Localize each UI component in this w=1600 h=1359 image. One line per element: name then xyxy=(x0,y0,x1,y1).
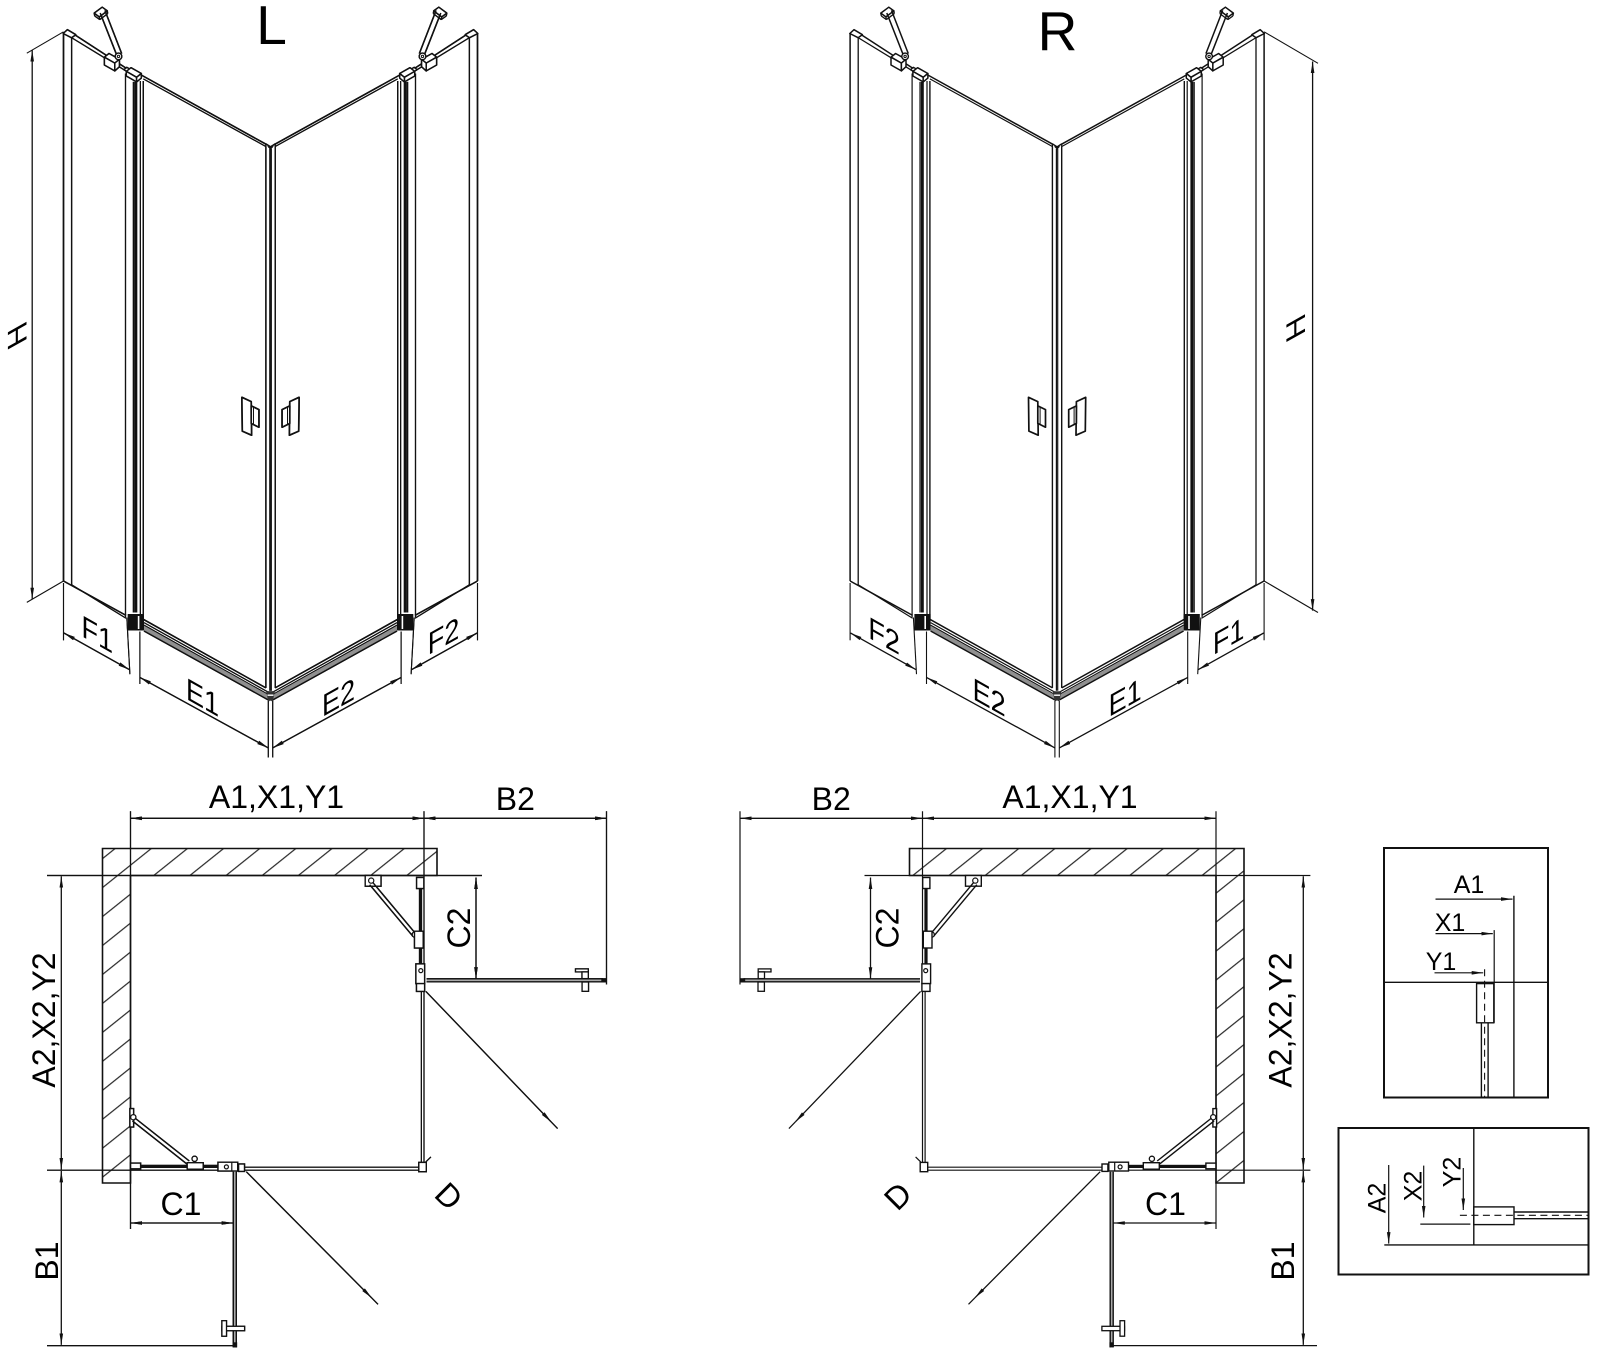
svg-text:C1: C1 xyxy=(161,1186,202,1222)
svg-text:B1: B1 xyxy=(29,1241,65,1280)
svg-text:X2: X2 xyxy=(1400,1171,1428,1202)
svg-text:A2,X2,Y2: A2,X2,Y2 xyxy=(26,952,62,1087)
svg-text:X1: X1 xyxy=(1435,909,1466,937)
svg-text:A2,X2,Y2: A2,X2,Y2 xyxy=(1263,952,1299,1087)
svg-text:Y1: Y1 xyxy=(1426,948,1457,976)
svg-text:C2: C2 xyxy=(441,908,477,949)
svg-text:Y2: Y2 xyxy=(1439,1157,1467,1188)
svg-text:C1: C1 xyxy=(1145,1186,1186,1222)
svg-text:A1,X1,Y1: A1,X1,Y1 xyxy=(209,779,344,815)
svg-text:B2: B2 xyxy=(812,781,851,817)
svg-text:A1: A1 xyxy=(1454,871,1485,899)
svg-text:B2: B2 xyxy=(496,781,535,817)
svg-text:R: R xyxy=(1038,0,1078,62)
svg-text:A2: A2 xyxy=(1363,1183,1391,1214)
svg-text:A1,X1,Y1: A1,X1,Y1 xyxy=(1002,779,1137,815)
svg-text:B1: B1 xyxy=(1265,1241,1301,1280)
svg-text:C2: C2 xyxy=(870,908,906,949)
svg-text:L: L xyxy=(256,0,287,56)
